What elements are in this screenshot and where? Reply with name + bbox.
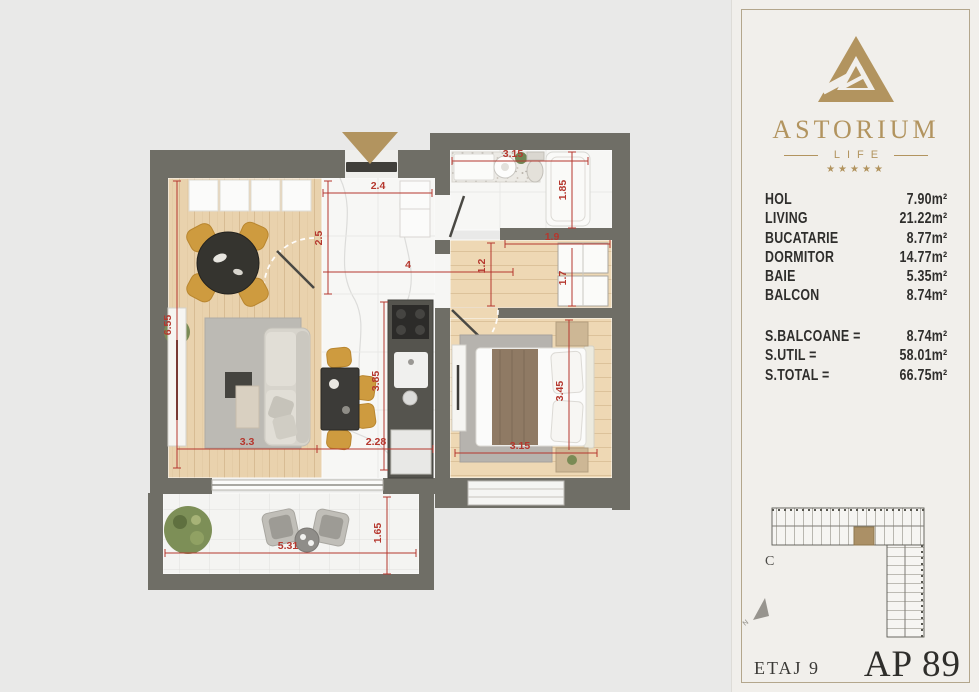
room-value: 7.90m² — [907, 190, 948, 209]
entrance-door — [346, 162, 397, 172]
total-row: S.TOTAL = 66.75m² — [765, 366, 947, 386]
room-row: BALCON 8.74m² — [765, 286, 947, 305]
total-value: 58.01m² — [900, 346, 948, 366]
dim-balcony-depth: 1.65 — [372, 523, 384, 544]
floor-plan: 6.55 3.3 2.28 3.85 2.4 2.5 4 1.2 3.15 1.… — [0, 0, 731, 692]
dim-hall-depth: 2.5 — [313, 231, 325, 246]
dim-bedroom-width: 3.15 — [510, 440, 531, 452]
total-label: S.UTIL = — [765, 346, 817, 366]
room-row: LIVING 21.22m² — [765, 209, 947, 228]
stars-rating: ★★★★★ — [732, 164, 979, 175]
room-row: HOL 7.90m² — [765, 190, 947, 209]
site-plan: C N — [732, 485, 979, 655]
cooktop — [392, 305, 429, 339]
room-row: BUCATARIE 8.77m² — [765, 229, 947, 248]
room-label: DORMITOR — [765, 248, 834, 267]
nightstand — [556, 322, 588, 346]
dim-living-depth: 6.55 — [162, 315, 174, 336]
room-label: LIVING — [765, 209, 808, 228]
room-label: BAIE — [765, 267, 796, 286]
total-label: S.BALCOANE = — [765, 327, 861, 347]
total-value: 8.74m² — [907, 327, 948, 347]
kitchen-sink — [394, 352, 428, 388]
dim-kitchen-width: 2.28 — [366, 436, 387, 448]
rule-left — [784, 155, 818, 156]
room-label: BALCON — [765, 286, 819, 305]
svg-text:N: N — [742, 619, 750, 628]
floor-label: ETAJ 9 — [754, 658, 820, 679]
kitchen-cabinet — [391, 430, 431, 474]
total-label: S.TOTAL = — [765, 366, 830, 386]
north-arrow-icon: N — [742, 598, 769, 628]
dim-dressing-width: 1.9 — [545, 231, 560, 243]
side-table — [236, 386, 259, 428]
room-value: 8.74m² — [907, 286, 948, 305]
apartment-label: AP 89 — [864, 643, 961, 686]
brand-block: ASTORIUM LIFE ★★★★★ — [732, 36, 979, 175]
sofa — [264, 328, 310, 446]
brand-logo-icon — [818, 36, 894, 102]
bed-throw — [492, 349, 538, 445]
brand-subtitle: LIFE — [827, 149, 885, 161]
room-value: 14.77m² — [900, 248, 948, 267]
dim-hall-width: 2.4 — [371, 180, 386, 192]
highlighted-apartment — [854, 527, 874, 545]
bedroom-window — [468, 481, 564, 505]
room-value: 8.77m² — [907, 229, 948, 248]
balcony-sliding-door — [212, 480, 383, 490]
dim-bedroom-depth: 3.45 — [554, 381, 566, 402]
room-value: 5.35m² — [907, 267, 948, 286]
block-label: C — [765, 554, 774, 569]
room-areas-list: HOL 7.90m² LIVING 21.22m² BUCATARIE 8.77… — [765, 190, 947, 386]
total-row: S.BALCOANE = 8.74m² — [765, 327, 947, 347]
dim-dressing-depth: 1.7 — [557, 271, 569, 286]
dim-bath-width: 3.15 — [503, 148, 524, 160]
total-row: S.UTIL = 58.01m² — [765, 346, 947, 366]
total-value: 66.75m² — [900, 366, 948, 386]
room-row: DORMITOR 14.77m² — [765, 248, 947, 267]
dining-table — [321, 368, 359, 430]
brochure-page: 6.55 3.3 2.28 3.85 2.4 2.5 4 1.2 3.15 1.… — [0, 0, 979, 692]
dim-kitchen-depth: 3.85 — [370, 371, 382, 392]
rule-right — [894, 155, 928, 156]
dim-hall-length: 4 — [405, 259, 411, 271]
pillow — [551, 400, 584, 443]
room-label: HOL — [765, 190, 792, 209]
dim-bath-depth: 1.85 — [557, 180, 569, 201]
balcony-table — [295, 528, 319, 552]
info-panel: ASTORIUM LIFE ★★★★★ HOL 7.90m² LIVING 21… — [731, 0, 979, 692]
dim-passage-width: 1.2 — [476, 259, 488, 274]
room-label: BUCATARIE — [765, 229, 838, 248]
room-value: 21.22m² — [900, 209, 948, 228]
totals-list: S.BALCOANE = 8.74m² S.UTIL = 58.01m² S.T… — [765, 327, 947, 386]
balcony-plant — [164, 506, 212, 554]
dim-balcony-width: 5.31 — [278, 540, 299, 552]
room-row: BAIE 5.35m² — [765, 267, 947, 286]
brand-name: ASTORIUM — [732, 115, 979, 145]
toilet — [527, 160, 543, 182]
dim-living-width: 3.3 — [240, 436, 255, 448]
entrance — [342, 132, 398, 178]
kitchen-counter — [388, 300, 433, 478]
